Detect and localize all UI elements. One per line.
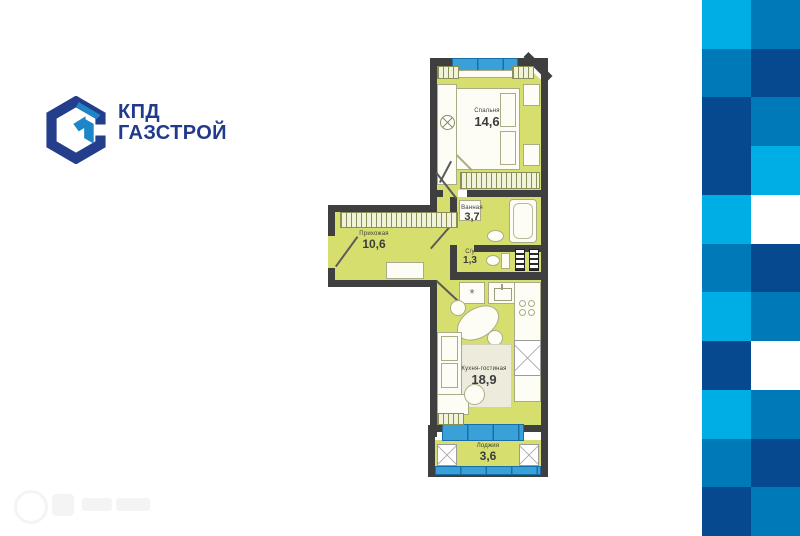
watermark bbox=[8, 486, 158, 528]
brand-logo: КПД ГАЗСТРОЙ bbox=[42, 96, 227, 166]
checker-cell bbox=[702, 390, 751, 439]
page: КПД ГАЗСТРОЙ bbox=[0, 0, 800, 536]
checker-row bbox=[702, 292, 800, 341]
checker-row bbox=[702, 439, 800, 488]
loggia-outer-glazing bbox=[435, 466, 541, 475]
kpd-gazstroy-logo-icon bbox=[42, 96, 110, 164]
burner bbox=[519, 300, 526, 307]
brand-line1: КПД bbox=[118, 102, 227, 123]
checker-cell bbox=[751, 341, 800, 390]
checker-cell bbox=[751, 244, 800, 293]
side-table bbox=[464, 384, 485, 405]
checker-cell bbox=[702, 439, 751, 488]
wall bbox=[450, 272, 548, 280]
chair bbox=[450, 300, 466, 316]
brand-name: КПД ГАЗСТРОЙ bbox=[118, 102, 227, 144]
sofa-cushion bbox=[441, 336, 458, 361]
doormat bbox=[386, 262, 424, 279]
loggia-cabinet bbox=[437, 444, 457, 466]
checker-cell bbox=[751, 292, 800, 341]
room-label-kitchen: Кухня-гостиная 18,9 bbox=[445, 366, 523, 387]
checker-cell bbox=[702, 292, 751, 341]
bathtub bbox=[509, 199, 537, 243]
room-label-wc: С/у 1,3 bbox=[455, 249, 485, 266]
wall bbox=[328, 205, 335, 236]
checker-row bbox=[702, 341, 800, 390]
bedroom-shelf-right bbox=[512, 66, 534, 79]
checker-row bbox=[702, 49, 800, 98]
loggia-cabinet bbox=[519, 444, 539, 466]
room-label-bathroom: Ванная 3,7 bbox=[447, 205, 497, 223]
checker-cell bbox=[702, 244, 751, 293]
wall bbox=[430, 287, 437, 437]
wall bbox=[430, 58, 437, 212]
checker-cell bbox=[702, 0, 751, 49]
checker-cell bbox=[702, 49, 751, 98]
checker-cell bbox=[751, 195, 800, 244]
stove-burner-icon: * bbox=[459, 287, 485, 300]
nightstand bbox=[523, 144, 540, 166]
bedroom-wardrobe-strip bbox=[460, 172, 540, 189]
kitchen-sill-strip bbox=[437, 413, 464, 425]
checker-cell bbox=[751, 97, 800, 146]
checker-row bbox=[702, 97, 800, 146]
loggia-door-glazing bbox=[442, 424, 524, 441]
checker-row bbox=[702, 244, 800, 293]
wall bbox=[328, 280, 437, 287]
checker-cell bbox=[751, 49, 800, 98]
checker-cell bbox=[751, 146, 800, 195]
room-label-loggia: Лоджия 3,6 bbox=[456, 443, 520, 463]
toilet-bowl bbox=[486, 255, 500, 266]
entry-threshold bbox=[328, 236, 335, 268]
brand-line2: ГАЗСТРОЙ bbox=[118, 123, 227, 144]
checker-cell bbox=[751, 390, 800, 439]
toilet-tank bbox=[501, 253, 510, 269]
sink bbox=[487, 230, 504, 242]
wall bbox=[428, 425, 435, 477]
wall bbox=[328, 205, 437, 212]
bath-door-threshold bbox=[450, 225, 457, 245]
nightstand bbox=[523, 84, 540, 106]
duct-shaft bbox=[515, 249, 525, 271]
checker-cell bbox=[751, 439, 800, 488]
pillow bbox=[500, 131, 516, 165]
bedroom-shelf-left bbox=[437, 66, 459, 79]
hallway-wardrobe bbox=[340, 212, 458, 228]
checker-row bbox=[702, 390, 800, 439]
burner bbox=[528, 300, 535, 307]
wall bbox=[437, 190, 443, 197]
room-label-hallway: Прихожая 10,6 bbox=[338, 231, 410, 251]
checker-cell bbox=[702, 146, 751, 195]
wall bbox=[541, 425, 548, 477]
room-label-bedroom: Спальня 14,6 bbox=[447, 108, 527, 129]
checker-cell bbox=[751, 487, 800, 536]
checker-cell bbox=[751, 0, 800, 49]
checker-cell bbox=[702, 195, 751, 244]
wall bbox=[467, 190, 541, 197]
checkerboard bbox=[702, 0, 800, 536]
burner bbox=[519, 309, 526, 316]
burner bbox=[528, 309, 535, 316]
checker-row bbox=[702, 195, 800, 244]
duct-shaft bbox=[529, 249, 539, 271]
checker-cell bbox=[702, 487, 751, 536]
checker-row bbox=[702, 0, 800, 49]
checker-row bbox=[702, 487, 800, 536]
checker-cell bbox=[702, 97, 751, 146]
checker-row bbox=[702, 146, 800, 195]
window-sill bbox=[458, 70, 514, 78]
checker-cell bbox=[702, 341, 751, 390]
kitchen-sink bbox=[488, 282, 516, 304]
